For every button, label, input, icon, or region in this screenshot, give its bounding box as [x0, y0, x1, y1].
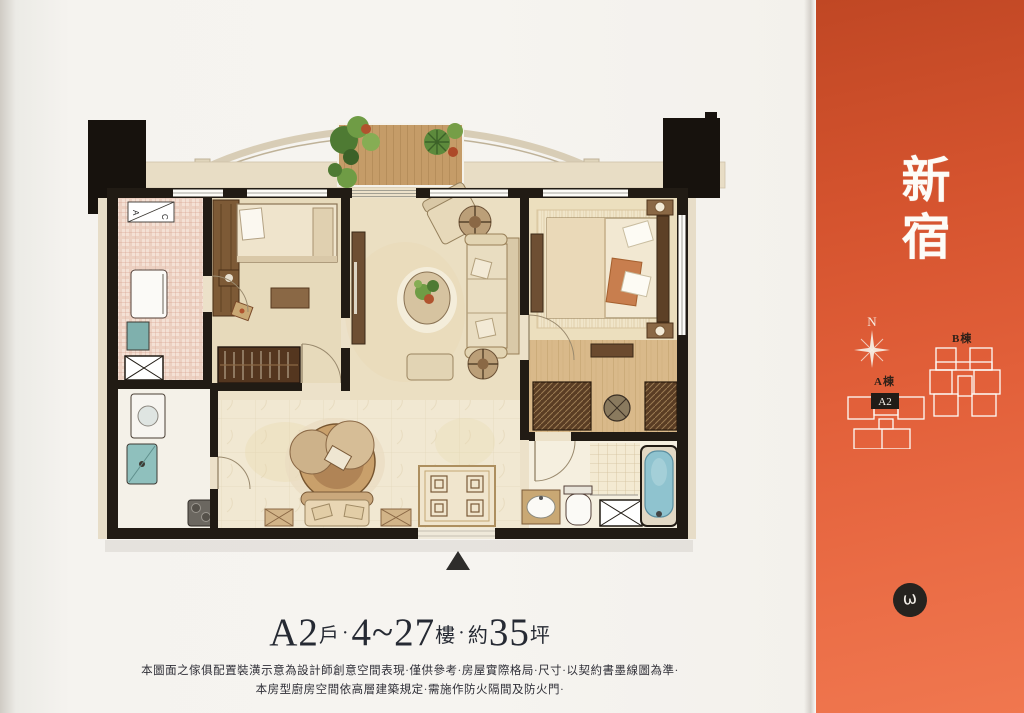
balcony — [143, 116, 725, 188]
sofa — [465, 234, 519, 358]
shower-tile — [590, 443, 640, 495]
ottoman — [407, 354, 453, 380]
tv-wall — [352, 232, 365, 344]
disclaimer: 本圖面之傢俱配置裝潢示意為設計師創意空間表現·僅供參考·房屋實際格局·尺寸·以契… — [85, 662, 735, 700]
fridge — [131, 270, 167, 318]
floor-plan-drawing: A C — [85, 112, 735, 577]
page-fold-shadow — [804, 0, 816, 713]
compass-star — [854, 330, 890, 368]
svg-text:A: A — [131, 210, 140, 216]
disclaimer-line-1: 本圖面之傢俱配置裝潢示意為設計師創意空間表現·僅供參考·房屋實際格局·尺寸·以契… — [85, 662, 735, 681]
toilet — [564, 486, 592, 494]
master-tv-cabinet — [531, 234, 543, 312]
unit-number: A2 — [269, 611, 319, 654]
svg-text:C: C — [160, 214, 169, 220]
building-a-outline: A2 — [846, 387, 926, 454]
project-title-char: 宿 — [898, 209, 954, 266]
building-b-label: B棟 — [952, 330, 972, 346]
project-title: 新 宿 — [898, 152, 954, 266]
entry-marker-triangle — [446, 551, 470, 570]
building-b-outline — [928, 346, 1002, 423]
sink-unit — [127, 322, 149, 350]
project-title-char: 新 — [898, 152, 954, 209]
brand-badge: ω — [891, 581, 929, 619]
unit-title: A2戶·4~27樓·約35坪 — [85, 610, 735, 655]
compass: N — [850, 314, 894, 377]
compass-n-label: N — [867, 314, 877, 329]
plan-shadow — [105, 540, 693, 552]
sidebar-panel: 新 宿 N B棟 — [816, 0, 1024, 713]
master-bed — [531, 200, 673, 338]
entry-rug — [419, 466, 495, 526]
unit-a2-marker-label: A2 — [878, 396, 891, 408]
floor-plan: A C — [85, 112, 735, 577]
brochure-page: A C — [0, 0, 816, 713]
disclaimer-line-2: 本房型廚房空間依高層建築規定·需施作防火隔間及防火門· — [85, 681, 735, 700]
